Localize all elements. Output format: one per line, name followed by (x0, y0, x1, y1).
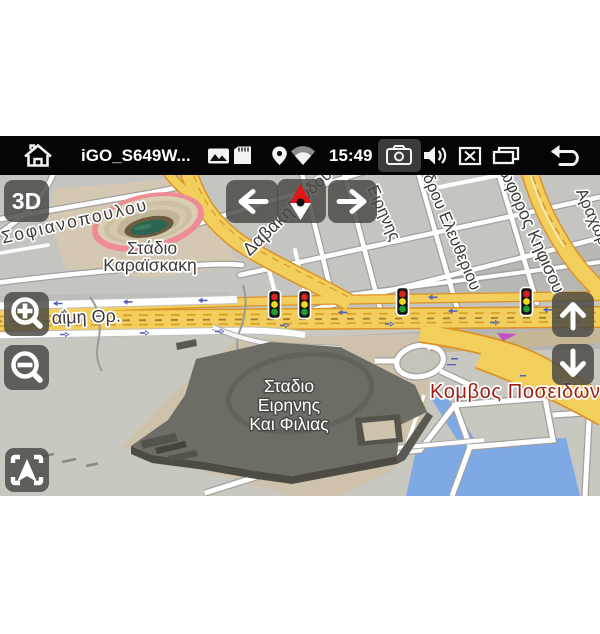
svg-text:αΐμη Θρ.: αΐμη Θρ. (51, 306, 121, 328)
svg-text:Ειρηνης: Ειρηνης (258, 395, 320, 415)
svg-text:Και Φιλιας: Και Φιλιας (249, 414, 328, 434)
svg-text:Καραϊσκακη: Καραϊσκακη (103, 255, 196, 275)
svg-text:Σταδιο: Σταδιο (264, 376, 314, 396)
